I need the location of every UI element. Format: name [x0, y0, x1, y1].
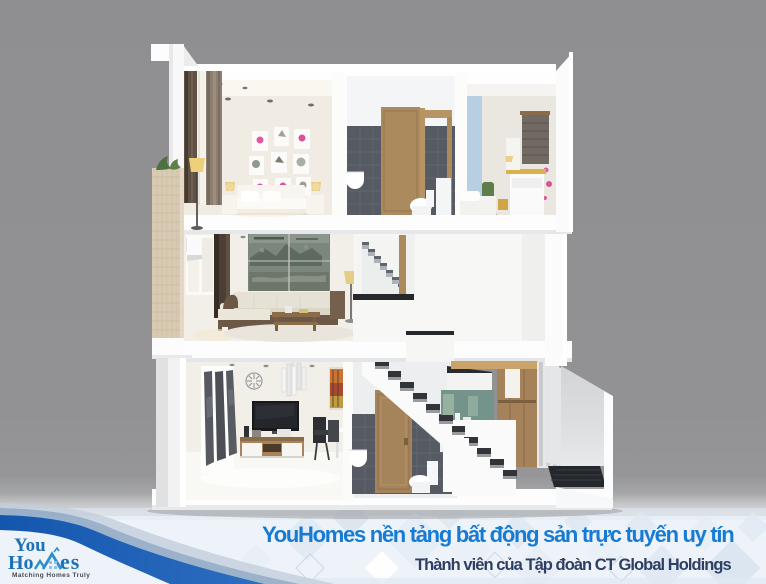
svg-text:es: es — [60, 549, 80, 574]
svg-text:Ho: Ho — [8, 552, 34, 574]
svg-text:Thành viên của Tập đoàn CT Glo: Thành viên của Tập đoàn CT Global Holdin… — [415, 556, 732, 574]
svg-text:Matching Homes Truly: Matching Homes Truly — [12, 572, 90, 579]
svg-text:YouHomes nền tảng bất động sản: YouHomes nền tảng bất động sản trực tuyế… — [262, 522, 734, 547]
